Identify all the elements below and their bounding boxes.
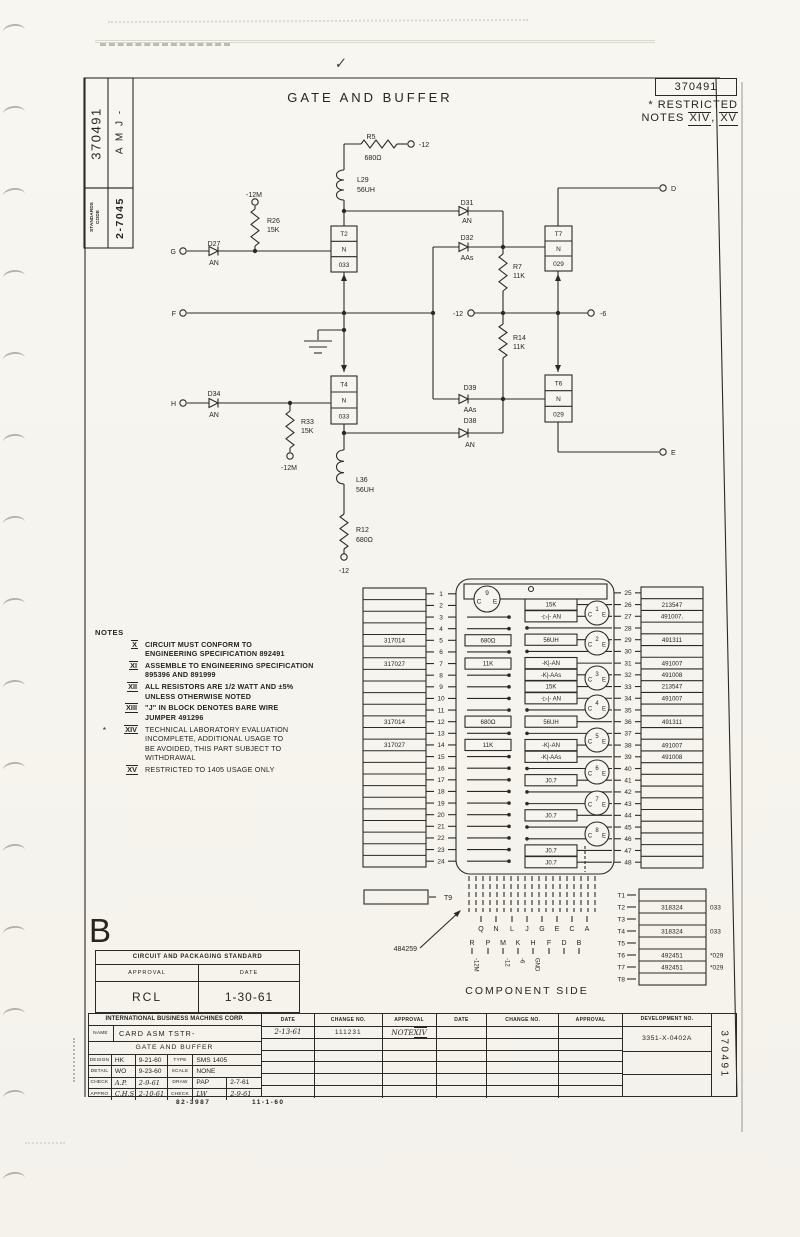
pin-number: 39 <box>624 754 632 761</box>
t-row-label: T5 <box>617 940 625 947</box>
note-line: TECHNICAL LABORATORY EVALUATION <box>145 725 288 734</box>
notes-block: NOTES XCIRCUIT MUST CONFORM TOENGINEERIN… <box>95 628 375 775</box>
t-row-note: 033 <box>710 904 721 911</box>
pin-number: 12 <box>437 719 445 726</box>
change-cell <box>383 1051 437 1062</box>
titleblock-development: DEVELOPMENT NO. 3351-X-0402A <box>623 1013 712 1097</box>
t-row-label: T7 <box>617 964 625 971</box>
label-r5_val: 680Ω <box>365 155 382 162</box>
signoff-row: CHECKA.P.2-9-61DRAWPAP2-7-61 <box>88 1078 261 1089</box>
signoff-date: 2-9-61 <box>136 1078 168 1088</box>
stamp-standards-label: STANDARDS CODE <box>90 187 102 247</box>
pin-number: 20 <box>437 812 445 819</box>
card-row-dot <box>507 673 511 677</box>
resistor <box>499 254 507 291</box>
label-r12_val: 680Ω <box>356 537 373 544</box>
label-d27: D27 <box>208 241 221 248</box>
pin-number: 4 <box>439 626 443 633</box>
right-part-number: 491007. <box>661 613 684 620</box>
card-component-label: -K|-AAs <box>541 673 562 679</box>
change-header-approval2: APPROVAL <box>559 1013 622 1026</box>
pin-number: 48 <box>624 859 632 866</box>
label-r5_supply: -12 <box>419 142 429 149</box>
pin-number: 45 <box>624 824 632 831</box>
note-star <box>95 703 108 722</box>
card-component-label: -K|-AN <box>542 743 560 749</box>
titleblock-signoff-rows: DESIGNHK9-21-60TYPESMS 1405DETAILWO9-23-… <box>88 1055 261 1100</box>
t-row-label: T4 <box>617 928 625 935</box>
signoff-date: 9-23-60 <box>136 1066 168 1076</box>
note-line: INCOMPLETE, ADDITIONAL USAGE TO <box>145 734 288 743</box>
transistor-c: C <box>588 643 593 649</box>
terminal-circle <box>287 453 293 459</box>
block-label: T2 <box>340 231 348 238</box>
card-row-dot <box>525 708 529 712</box>
titleblock-changes: DATE CHANGE NO. APPROVAL DATE CHANGE NO.… <box>262 1013 623 1097</box>
label-r26_val: 15K <box>267 227 280 234</box>
transistor-e: E <box>602 740 606 746</box>
signoff-initials: C.H.S <box>112 1089 136 1100</box>
connector-letter: M <box>500 940 506 947</box>
note-star <box>95 682 108 701</box>
terminal-circle <box>660 185 666 191</box>
card-row-dot <box>525 767 529 771</box>
resistor <box>361 140 397 148</box>
change-cell <box>383 1039 437 1050</box>
connector-letter: A <box>585 926 590 933</box>
pin-number: 32 <box>624 672 632 679</box>
label-r7: R7 <box>513 264 522 271</box>
stamp-standards-value: 2-7045 <box>114 188 126 248</box>
decor: XIV <box>414 1027 427 1038</box>
note-roman-numeral: XII <box>127 682 138 692</box>
note-text: CIRCUIT MUST CONFORM TOENGINEERING SPECI… <box>145 640 285 659</box>
pointer-line <box>420 912 459 948</box>
pin-number: 13 <box>437 731 445 738</box>
note-line: ASSEMBLE TO ENGINEERING SPECIFICATION <box>145 661 313 670</box>
note-text: TECHNICAL LABORATORY EVALUATIONINCOMPLET… <box>145 725 288 763</box>
transistor-number: 9 <box>485 590 489 597</box>
card-row-dot <box>507 685 511 689</box>
pin-number: 33 <box>624 684 632 691</box>
change-cell <box>559 1074 622 1085</box>
left-part-number: 317027 <box>384 661 406 668</box>
pin-number: 6 <box>439 649 443 656</box>
check-mark: ✓ <box>333 55 347 72</box>
development-number: 3351-X-0402A <box>623 1027 711 1052</box>
label-l29_val: 56UH <box>357 187 375 194</box>
right-part-number: 491007 <box>662 660 683 667</box>
note-number: XI <box>108 661 138 680</box>
pin-number: 26 <box>624 602 632 609</box>
card-row-dot <box>525 732 529 736</box>
card-row-dot <box>507 615 511 619</box>
stamp-code-letters: A M J - <box>115 82 126 182</box>
signoff-row: DESIGNHK9-21-60TYPESMS 1405 <box>88 1055 261 1066</box>
pin-number: 17 <box>437 777 445 784</box>
terminal-circle <box>408 141 414 147</box>
change-row <box>262 1074 622 1086</box>
stamp-number: 370491 <box>89 84 104 184</box>
block-label: N <box>342 398 347 405</box>
label-d38: D38 <box>464 418 477 425</box>
signoff-label: TYPE <box>168 1055 194 1065</box>
pin-number: 10 <box>437 696 445 703</box>
right-part-number: 213547 <box>662 602 683 609</box>
pin-number: 16 <box>437 765 445 772</box>
t-row-note: *029 <box>710 964 724 971</box>
connector-letter: G <box>539 926 544 933</box>
connector-signal: -12 <box>504 958 510 967</box>
packaging-date: 1-30-61 <box>199 982 299 1013</box>
signoff-row: DETAILWO9-23-60SCALENONE <box>88 1066 261 1077</box>
junction-dot <box>501 245 505 249</box>
arrowhead <box>555 274 561 281</box>
label-d: D <box>671 186 676 193</box>
change-cell <box>437 1027 488 1038</box>
transistor-c: C <box>477 599 482 606</box>
note-text: RESTRICTED TO 1405 USAGE ONLY <box>145 765 275 775</box>
junction-dot <box>342 328 346 332</box>
label-d32: D32 <box>461 235 474 242</box>
label-r14: R14 <box>513 335 526 342</box>
label-d27_type: AN <box>209 260 219 267</box>
note-star: * <box>95 725 108 763</box>
change-cell <box>383 1062 437 1073</box>
arrowhead <box>341 365 347 372</box>
junction-dot <box>556 311 560 315</box>
arrowhead <box>555 365 561 372</box>
standards-line2: CODE <box>96 187 102 247</box>
resistor <box>499 324 507 358</box>
card-component-label: -▷|- AN <box>541 696 561 702</box>
pin-number: 14 <box>437 742 445 749</box>
note-text: ALL RESISTORS ARE 1/2 WATT AND ±5%UNLESS… <box>145 682 293 701</box>
junction-dot <box>501 397 505 401</box>
card-row-dot <box>507 790 511 794</box>
change-row <box>262 1062 622 1074</box>
titleblock-left: INTERNATIONAL BUSINESS MACHINES CORP. NA… <box>88 1013 262 1097</box>
transistor-e: E <box>602 772 606 778</box>
label-mid_supply_left: -12 <box>453 311 463 318</box>
change-cell <box>487 1027 559 1038</box>
card-row-dot <box>507 859 511 863</box>
t9-label: T9 <box>444 895 452 902</box>
transistor-c: C <box>588 834 593 840</box>
card-row-dot <box>507 732 511 736</box>
restricted-note-xv: XV <box>719 112 738 126</box>
pin-number: 18 <box>437 789 445 796</box>
change-cell <box>487 1051 559 1062</box>
note-number: XV <box>108 765 138 775</box>
component-side-caption: COMPONENT SIDE <box>465 985 588 997</box>
card-row-dot <box>525 802 529 806</box>
junction-dot <box>288 401 292 405</box>
pin-number: 31 <box>624 660 632 667</box>
restricted-notes-prefix: NOTES <box>641 112 684 124</box>
frame-right <box>716 78 737 1097</box>
notes-items: XCIRCUIT MUST CONFORM TOENGINEERING SPEC… <box>95 640 375 775</box>
approval-header: APPROVAL <box>96 965 199 981</box>
block-label: N <box>556 396 561 403</box>
connector-signal: -6 <box>519 958 525 964</box>
pin-number: 11 <box>438 707 445 714</box>
card-row-dot <box>525 837 529 841</box>
signoff-initials: WO <box>112 1066 136 1076</box>
card-row-dot <box>525 825 529 829</box>
pin-number: 36 <box>624 719 632 726</box>
change-cell <box>487 1074 559 1085</box>
restricted-word: RESTRICTED <box>658 99 738 111</box>
note-roman-numeral: XI <box>129 661 138 671</box>
change-cell <box>559 1027 622 1038</box>
transistor-e: E <box>602 643 606 649</box>
connector-letter: F <box>547 940 551 947</box>
connector-letter: R <box>469 940 474 947</box>
change-row: 2-13-61111231NOTE XIV <box>262 1027 622 1039</box>
label-d31: D31 <box>461 200 474 207</box>
inductor <box>337 450 345 484</box>
pin-number: 2 <box>439 603 443 610</box>
transistor-c: C <box>588 772 593 778</box>
card-component-label: -▷|- AN <box>541 614 561 620</box>
card-row-dot <box>507 697 511 701</box>
transistor-e: E <box>602 803 606 809</box>
block-label: 029 <box>553 412 564 419</box>
change-header-date2: DATE <box>437 1013 488 1026</box>
pin-number: 1 <box>439 591 443 598</box>
note-number: XII <box>108 682 138 701</box>
revision-letter: B <box>89 912 111 950</box>
transistor-c: C <box>588 678 593 684</box>
block-label: T4 <box>340 382 348 389</box>
change-row <box>262 1051 622 1063</box>
t-row-label: T2 <box>617 904 625 911</box>
pin-number: 42 <box>624 789 632 796</box>
label-d34_type: AN <box>209 412 219 419</box>
note-star <box>95 661 108 680</box>
left-part-number: 317027 <box>384 742 406 749</box>
label-d39_type: AAs <box>464 407 477 414</box>
pin-number: 5 <box>439 638 443 645</box>
signoff-date: 2-7-61 <box>227 1078 261 1088</box>
change-cell <box>437 1062 488 1073</box>
form-print-mark <box>73 1038 75 1082</box>
connector-letter: B <box>577 940 582 947</box>
card-component-label: 56UH <box>543 638 558 644</box>
junction-dot <box>342 311 346 315</box>
card-component-label: J0.7 <box>545 778 557 784</box>
packaging-header-row: APPROVAL DATE <box>96 965 299 982</box>
change-header-no1: CHANGE NO. <box>315 1013 383 1026</box>
transistor-e: E <box>602 678 606 684</box>
note-number: XIII <box>108 703 138 722</box>
note-line: 895396 AND 891999 <box>145 670 313 679</box>
card-row-dot <box>525 790 529 794</box>
change-cell <box>437 1074 488 1085</box>
connector-signal: -12M <box>473 958 479 972</box>
card-row-dot <box>507 848 511 852</box>
note-item: XIIALL RESISTORS ARE 1/2 WATT AND ±5%UNL… <box>95 682 375 701</box>
terminal-circle <box>180 248 186 254</box>
change-header-row: DATE CHANGE NO. APPROVAL DATE CHANGE NO.… <box>262 1013 622 1027</box>
card-component-label: 11K <box>483 742 494 749</box>
signoff-row: APPROC.H.S2-10-61CHECKLW2-9-61 <box>88 1089 261 1100</box>
note-line: ENGINEERING SPECIFICATION 892491 <box>145 649 285 658</box>
change-cell <box>315 1086 383 1098</box>
label-l29: L29 <box>357 177 369 184</box>
label-d34: D34 <box>208 391 221 398</box>
t-row-label: T1 <box>617 892 625 899</box>
label-d38_type: AN <box>465 442 475 449</box>
pin-number: 23 <box>437 847 445 854</box>
pin-number: 21 <box>437 824 445 831</box>
drawing-title: GATE AND BUFFER <box>285 90 455 105</box>
connector-letter: H <box>530 940 535 947</box>
label-f: F <box>172 311 176 318</box>
label-h: H <box>171 401 176 408</box>
packaging-approval: RCL <box>96 982 199 1013</box>
scan-smudge <box>100 43 230 46</box>
change-header-approval1: APPROVAL <box>383 1013 437 1026</box>
transistor-c: C <box>588 707 593 713</box>
block-label: T6 <box>555 380 563 387</box>
terminal-circle <box>252 199 258 205</box>
junction-dot <box>342 209 346 213</box>
card-row-dot <box>507 825 511 829</box>
pin-number: 27 <box>624 614 632 621</box>
left-part-number: 317014 <box>384 719 406 726</box>
note-item: XIII"J" IN BLOCK DENOTES BARE WIREJUMPER… <box>95 703 375 722</box>
label-r12_supply: -12 <box>339 568 349 575</box>
note-text: ASSEMBLE TO ENGINEERING SPECIFICATION895… <box>145 661 313 680</box>
note-item: XIASSEMBLE TO ENGINEERING SPECIFICATION8… <box>95 661 375 680</box>
card-row-dot <box>525 650 529 654</box>
pin-number: 25 <box>624 590 632 597</box>
connector-letter: P <box>486 940 491 947</box>
pin-number: 47 <box>624 848 632 855</box>
card-component-label: 15K <box>546 685 557 691</box>
date-header: DATE <box>199 965 299 981</box>
right-part-number: 491008 <box>662 754 683 761</box>
card-row-dot <box>507 801 511 805</box>
signoff-label: SCALE <box>168 1066 194 1076</box>
note-line: UNLESS OTHERWISE NOTED <box>145 692 293 701</box>
scan-smudge <box>25 1142 65 1144</box>
note-line: "J" IN BLOCK DENOTES BARE WIRE <box>145 703 278 712</box>
label-r5: R5 <box>367 134 376 141</box>
t-row-value: 318324 <box>661 928 683 935</box>
card-row-dot <box>507 650 511 654</box>
label-r14_val: 11K <box>513 344 525 351</box>
card-component-label: -K|-AN <box>542 661 560 667</box>
signoff-date: 9-21-60 <box>136 1055 168 1065</box>
signoff-date: 2-10-61 <box>136 1089 168 1100</box>
change-cell <box>262 1051 315 1062</box>
note-roman-numeral: XIV <box>124 725 138 735</box>
change-header-date1: DATE <box>262 1013 315 1026</box>
development-label: DEVELOPMENT NO. <box>623 1013 711 1027</box>
block-label: N <box>556 246 561 253</box>
card-row-dot <box>507 836 511 840</box>
change-cell <box>559 1062 622 1073</box>
pin-number: 22 <box>437 835 445 842</box>
change-cell <box>262 1062 315 1073</box>
change-cell: 2-13-61 <box>262 1027 315 1038</box>
block-label: T7 <box>555 231 563 238</box>
connector-letter: E <box>555 926 560 933</box>
junction-dot <box>342 431 346 435</box>
pin-number: 9 <box>439 684 443 691</box>
note-number: X <box>108 640 138 659</box>
change-cell <box>262 1074 315 1085</box>
connector-letter: L <box>510 926 514 933</box>
restricted-line2: NOTES XIV, XV <box>520 112 738 126</box>
change-row <box>262 1086 622 1098</box>
connector-letter: J <box>525 926 529 933</box>
change-cell <box>559 1086 622 1098</box>
t-row-value: 492451 <box>661 952 683 959</box>
t-row-label: T6 <box>617 952 625 959</box>
label-r33_supply: -12M <box>281 465 297 472</box>
label-r33_val: 15K <box>301 428 314 435</box>
note-star <box>95 765 108 775</box>
terminal-circle <box>588 310 594 316</box>
signoff-label: DESIGN <box>88 1055 112 1065</box>
note-item: *XIVTECHNICAL LABORATORY EVALUATIONINCOM… <box>95 725 375 763</box>
change-cell <box>315 1074 383 1085</box>
note-text: "J" IN BLOCK DENOTES BARE WIREJUMPER 491… <box>145 703 278 722</box>
block-label: N <box>342 247 347 254</box>
change-row <box>262 1039 622 1051</box>
pin-number: 41 <box>624 778 632 785</box>
diode-icon <box>209 399 218 408</box>
signoff-value: NONE <box>193 1066 261 1076</box>
transistor-c: C <box>588 613 593 619</box>
label-d32_type: AAs <box>461 255 474 262</box>
change-rows: 2-13-61111231NOTE XIV <box>262 1027 622 1098</box>
note-star <box>95 640 108 659</box>
terminal-circle <box>341 554 347 560</box>
signoff-initials: HK <box>112 1055 136 1065</box>
name-row: NAME CARD ASM TSTR- <box>88 1026 261 1042</box>
card-component-label: J0.7 <box>545 849 557 855</box>
diode-icon <box>459 429 468 438</box>
connector-letter: K <box>516 940 521 947</box>
note-roman-numeral: X <box>131 640 138 650</box>
label-r12: R12 <box>356 527 369 534</box>
signoff-initials: A.P. <box>112 1078 136 1088</box>
pin-number: 7 <box>439 661 443 668</box>
card-row-dot <box>507 766 511 770</box>
label-d31_type: AN <box>462 218 472 225</box>
page-edge-shadow <box>741 82 743 1132</box>
change-cell <box>315 1062 383 1073</box>
label-r33: R33 <box>301 419 314 426</box>
packaging-table: CIRCUIT AND PACKAGING STANDARD APPROVAL … <box>95 950 300 1013</box>
card-row-dot <box>507 755 511 759</box>
pin-number: 28 <box>624 625 632 632</box>
card-name: CARD ASM TSTR- <box>114 1026 261 1041</box>
change-cell <box>437 1039 488 1050</box>
card-row-dot <box>525 626 529 630</box>
note-line: ALL RESISTORS ARE 1/2 WATT AND ±5% <box>145 682 293 691</box>
card-row-dot <box>507 708 511 712</box>
change-cell <box>315 1051 383 1062</box>
connector-letter: D <box>561 940 566 947</box>
t-row-note: *029 <box>710 952 724 959</box>
company-name: INTERNATIONAL BUSINESS MACHINES CORP. <box>88 1013 261 1026</box>
